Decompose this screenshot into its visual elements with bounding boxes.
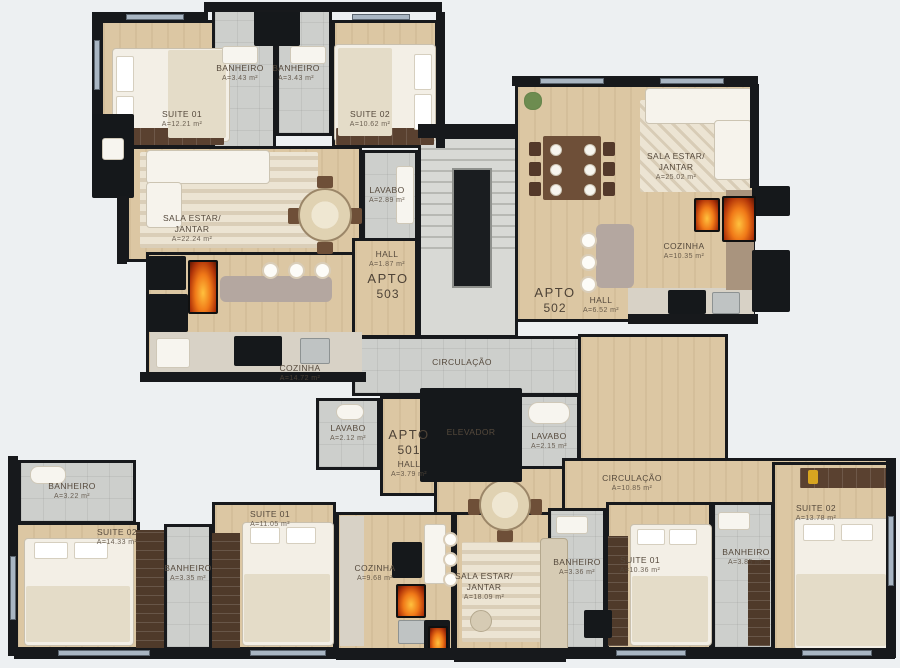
label-lavabo-core: LAVABO A=2.15 m² xyxy=(514,432,584,451)
pillow xyxy=(250,527,280,544)
room-area: A=3.43 m² xyxy=(222,75,258,83)
wall xyxy=(117,196,127,264)
fireplace xyxy=(722,196,756,242)
room-area: A=10.62 m² xyxy=(350,121,390,129)
label-suite01-apto501: SUITE 01 A=11.05 m² xyxy=(225,510,315,529)
room-area: A=14.72 m² xyxy=(280,375,320,383)
pillow xyxy=(286,527,316,544)
corridor-right xyxy=(578,334,728,472)
room-area: A=2.15 m² xyxy=(531,443,567,451)
stool xyxy=(314,262,331,279)
appliance xyxy=(156,338,190,368)
room-name: SUITE 02 xyxy=(350,110,390,120)
room-name: JANTAR xyxy=(467,583,502,593)
room-name: COZINHA xyxy=(354,564,395,574)
room-name: SALA ESTAR/ xyxy=(647,152,705,162)
room-name: JANTAR xyxy=(175,225,210,235)
label-hall-apto502: HALL A=6.52 m² xyxy=(566,296,636,315)
chair xyxy=(530,499,542,515)
window xyxy=(58,650,150,656)
chair xyxy=(603,142,615,156)
room-name: JANTAR xyxy=(659,163,694,173)
window xyxy=(94,40,100,90)
apto-word: APTO xyxy=(367,272,408,287)
room-area: A=10.36 m² xyxy=(620,567,660,575)
oven-fire xyxy=(396,584,426,618)
room-name: SALA ESTAR/ xyxy=(163,214,221,224)
room-name: BANHEIRO xyxy=(272,64,320,74)
window xyxy=(802,650,872,656)
shaft xyxy=(584,610,612,638)
window xyxy=(250,650,326,656)
label-apto-503: APTO 503 xyxy=(348,272,428,302)
label-sala-apto502: SALA ESTAR/ JANTAR A=25.02 m² xyxy=(626,152,726,182)
label-hall-apto503: HALL A=1.87 m² xyxy=(352,250,422,269)
chair xyxy=(529,162,541,176)
label-hall-apto501: HALL A=3.79 m² xyxy=(374,460,444,479)
room-area: A=25.02 m² xyxy=(656,174,696,182)
wall xyxy=(204,2,442,12)
label-suite02-apto501: SUITE 02 A=14.33 m² xyxy=(72,528,162,547)
room-area: A=3.36 m² xyxy=(559,569,595,577)
kitchen-sink xyxy=(712,292,740,314)
chair xyxy=(497,530,513,542)
window xyxy=(540,78,604,84)
window xyxy=(888,516,894,586)
plate xyxy=(584,144,596,156)
duct-shaft xyxy=(254,6,300,46)
terrace-cabinet xyxy=(752,186,790,216)
label-banheiro2-apto501: BANHEIRO A=3.35 m² xyxy=(153,564,223,583)
window xyxy=(10,556,16,620)
stool xyxy=(443,552,458,567)
chair xyxy=(603,182,615,196)
room-area: A=1.87 m² xyxy=(369,261,405,269)
stair-core xyxy=(452,168,492,288)
room-name: SUITE 02 xyxy=(97,528,137,538)
room-name: SUITE 01 xyxy=(162,110,202,120)
room-area: A=14.33 m² xyxy=(97,539,137,547)
room-area: A=10.85 m² xyxy=(612,485,652,493)
cooktop xyxy=(668,290,706,314)
blanket xyxy=(244,574,330,642)
room-area: A=3.22 m² xyxy=(54,493,90,501)
room-name: BANHEIRO xyxy=(553,558,601,568)
fireplace xyxy=(694,198,720,232)
stool xyxy=(580,232,597,249)
plate xyxy=(584,184,596,196)
apto-number: 501 xyxy=(397,444,420,458)
stool xyxy=(262,262,279,279)
room-area: A=10.35 m² xyxy=(664,253,704,261)
room-name: HALL xyxy=(398,460,421,470)
window xyxy=(126,14,184,20)
stool xyxy=(443,532,458,547)
room-area: A=22.24 m² xyxy=(172,236,212,244)
kitchen-island xyxy=(596,224,634,288)
room-area: A=11.05 m² xyxy=(250,521,290,529)
pouf xyxy=(470,610,492,632)
cooktop xyxy=(234,336,282,366)
room-name: SUITE 01 xyxy=(250,510,290,520)
room-area: A=12.21 m² xyxy=(162,121,202,129)
chair xyxy=(317,176,333,188)
terrace-cabinet xyxy=(752,250,790,312)
pillow xyxy=(669,529,697,545)
window xyxy=(616,650,686,656)
kitchen-cabinet xyxy=(148,294,188,332)
washbasin xyxy=(556,516,588,534)
label-banheiro1-apto501: BANHEIRO A=3.22 m² xyxy=(32,482,112,501)
sofa xyxy=(146,150,270,184)
wardrobe xyxy=(136,530,164,650)
room-name: SALA ESTAR/ xyxy=(455,572,513,582)
room-name: LAVABO xyxy=(330,424,365,434)
washbasin xyxy=(528,402,570,424)
pillow xyxy=(116,56,134,92)
label-suite02-direita: SUITE 02 A=13.78 m² xyxy=(771,504,861,523)
dining-table xyxy=(298,188,352,242)
plate xyxy=(550,144,562,156)
bathtub xyxy=(222,46,258,64)
room-name: ELEVADOR xyxy=(447,428,496,438)
room-name: SUITE 02 xyxy=(796,504,836,514)
window xyxy=(352,14,410,20)
wall xyxy=(750,84,759,188)
room-name: COZINHA xyxy=(663,242,704,252)
room-name: HALL xyxy=(376,250,399,260)
wardrobe xyxy=(748,560,770,646)
blanket xyxy=(26,586,130,642)
room-name: CIRCULAÇÃO xyxy=(602,474,662,484)
room-name: CIRCULAÇÃO xyxy=(432,358,492,368)
room-name: BANHEIRO xyxy=(164,564,212,574)
apto-number: 503 xyxy=(376,288,399,302)
book xyxy=(808,470,818,484)
room-area: A=6.52 m² xyxy=(583,307,619,315)
label-circulacao-core: CIRCULAÇÃO xyxy=(392,358,532,368)
fireplace xyxy=(188,260,218,314)
label-circulacao-direita: CIRCULAÇÃO A=10.85 m² xyxy=(567,474,697,493)
room-name: COZINHA xyxy=(279,364,320,374)
wall xyxy=(436,12,445,148)
room-area: A=2.12 m² xyxy=(330,435,366,443)
terrace-chair xyxy=(102,138,124,160)
room-area: A=2.89 m² xyxy=(369,197,405,205)
room-name: LAVABO xyxy=(369,186,404,196)
room-name: BANHEIRO xyxy=(48,482,96,492)
pillow xyxy=(34,542,68,559)
chair xyxy=(317,242,333,254)
washbasin xyxy=(718,512,750,530)
room-name: HALL xyxy=(590,296,613,306)
blanket xyxy=(632,576,708,642)
room-area: A=18.09 m² xyxy=(464,594,504,602)
label-sala-apto501: SALA ESTAR/ JANTAR A=18.09 m² xyxy=(434,572,534,602)
room-area: A=3.43 m² xyxy=(278,75,314,83)
stool xyxy=(288,262,305,279)
label-lavabo-apto501: LAVABO A=2.12 m² xyxy=(313,424,383,443)
apto-word: APTO xyxy=(388,428,429,443)
room-area: A=13.78 m² xyxy=(796,515,836,523)
room-name: SUITE 01 xyxy=(620,556,660,566)
room-banheiro2-apto501 xyxy=(164,524,212,650)
chair xyxy=(529,182,541,196)
pillow xyxy=(841,524,873,541)
kitchen-cabinet xyxy=(148,256,186,290)
apto-number: 502 xyxy=(543,302,566,316)
room-area: A=3.79 m² xyxy=(391,471,427,479)
kitchen-sink xyxy=(398,620,426,644)
plate xyxy=(550,184,562,196)
room-area: A=9.68 m² xyxy=(357,575,393,583)
chair xyxy=(529,142,541,156)
stool xyxy=(580,254,597,271)
wall xyxy=(628,314,758,324)
room-area: A=3.85 m² xyxy=(728,559,764,567)
label-sala-apto503: SALA ESTAR/ JANTAR A=22.24 m² xyxy=(142,214,242,244)
label-banheiro2-apto503: BANHEIRO A=3.43 m² xyxy=(256,64,336,83)
chair xyxy=(603,162,615,176)
label-cozinha-apto501: COZINHA A=9.68 m² xyxy=(335,564,415,583)
kitchen-island xyxy=(220,276,332,302)
label-banheiro2-direita: BANHEIRO A=3.85 m² xyxy=(711,548,781,567)
sofa xyxy=(540,538,568,652)
blanket xyxy=(796,574,886,646)
bathtub xyxy=(290,46,326,64)
pillow xyxy=(414,54,432,90)
label-lavabo-apto503: LAVABO A=2.89 m² xyxy=(352,186,422,205)
plate xyxy=(584,164,596,176)
label-cozinha-apto503: COZINHA A=14.72 m² xyxy=(260,364,340,383)
kitchen-sink xyxy=(300,338,330,364)
room-name: LAVABO xyxy=(531,432,566,442)
floor-plan: SUITE 01 A=12.21 m² BANHEIRO A=3.43 m² B… xyxy=(0,0,900,668)
wardrobe xyxy=(212,533,240,650)
label-apto-501: APTO 501 xyxy=(374,428,444,458)
room-area: A=3.35 m² xyxy=(170,575,206,583)
room-name: BANHEIRO xyxy=(722,548,770,558)
plate xyxy=(550,164,562,176)
window xyxy=(660,78,724,84)
pillow xyxy=(637,529,665,545)
dining-table xyxy=(479,479,531,531)
plant xyxy=(524,92,542,110)
label-suite02-apto503: SUITE 02 A=10.62 m² xyxy=(320,110,420,129)
sofa xyxy=(645,88,753,124)
label-suite01-direita: SUITE 01 A=10.36 m² xyxy=(595,556,685,575)
pillow xyxy=(803,524,835,541)
washbasin xyxy=(336,404,364,420)
wall xyxy=(418,124,518,138)
label-suite01-apto503: SUITE 01 A=12.21 m² xyxy=(132,110,232,129)
label-cozinha-apto502: COZINHA A=10.35 m² xyxy=(644,242,724,261)
